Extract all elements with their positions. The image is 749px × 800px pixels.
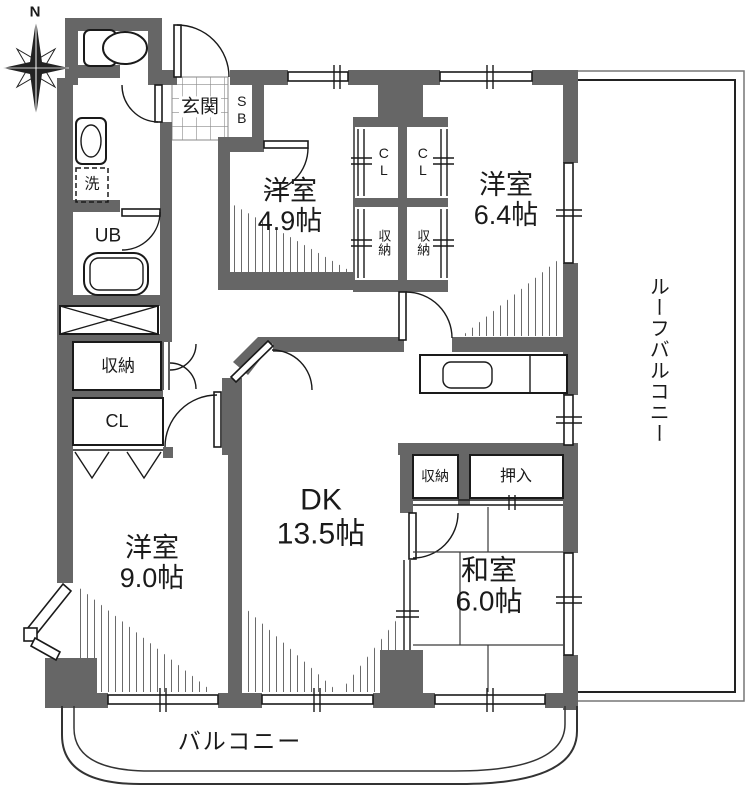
hall-storage-label: 収納 [101,356,135,375]
bathtub-icon [84,253,148,295]
balcony-label: バルコニー [178,729,303,755]
closet-right-label: CL [414,145,430,179]
toilet-icon [84,30,147,66]
storage-left-label: 収納 [376,229,391,257]
room-name: 洋室 [120,533,185,563]
washitsu-storage-label: 収納 [421,469,449,485]
room-label-western-6-4: 洋室 6.4帖 [474,170,539,230]
room-size: 6.4帖 [474,200,539,230]
room-size: 9.0帖 [120,563,185,593]
storage-right-label: 収納 [415,229,430,257]
entrance-door-arc [177,25,229,77]
washbasin-icon [76,118,106,164]
room-name: 和室 [456,555,523,586]
pipe-space [60,306,158,334]
balcony-outline [62,706,577,784]
room-name: DK [277,483,365,517]
kitchen-counter [420,355,567,393]
room-name: 洋室 [474,170,539,200]
compass-north-label: N [30,5,41,22]
floor-plan-drawing [0,0,749,800]
closet-left-label: CL [375,145,391,179]
room-size: 6.0帖 [456,586,523,617]
bay-window [24,584,71,660]
room-size: 4.9帖 [258,206,323,236]
shoe-box-label: SB [233,93,249,127]
room-size: 13.5帖 [277,517,365,551]
floor-plan: N 玄関 SB 洋室 4.9帖 CL CL 収納 収納 洋室 6.4帖 ルーフバ… [0,0,749,800]
laundry-label: 洗 [84,177,99,194]
oshiire-label: 押入 [500,468,532,486]
room-label-washitsu: 和室 6.0帖 [456,555,523,618]
room-name: 洋室 [258,176,323,206]
room-label-dk: DK 13.5帖 [277,483,365,550]
entrance-label: 玄関 [179,96,221,117]
entrance-door-leaf [174,25,181,77]
roof-balcony-label: ルーフバルコニー [646,276,668,444]
hall-closet-label: CL [105,411,128,431]
room-label-western-4-9: 洋室 4.9帖 [258,176,323,236]
room-label-western-9-0: 洋室 9.0帖 [120,533,185,593]
unit-bath-label: UB [95,225,121,246]
